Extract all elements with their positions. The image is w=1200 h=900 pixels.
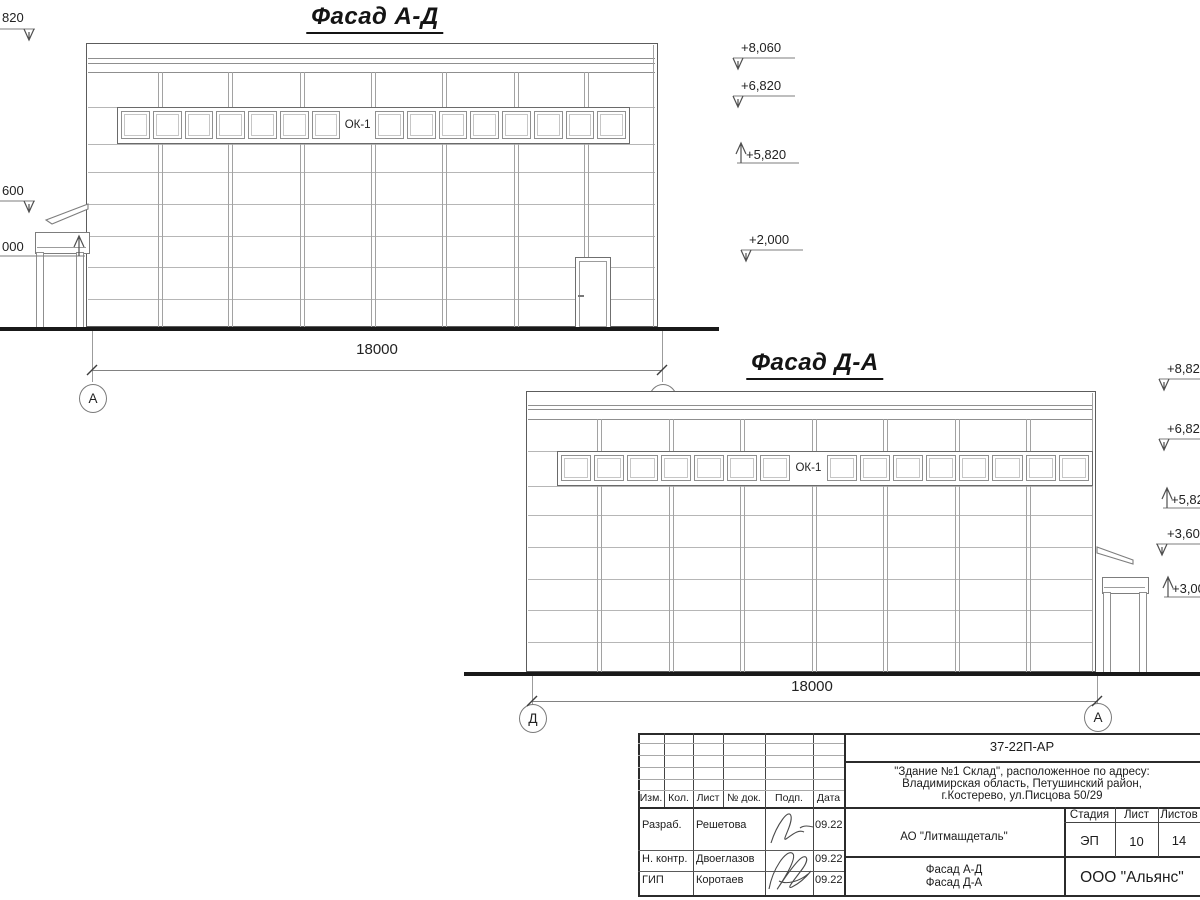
- window: [597, 111, 626, 139]
- window-inner-frame: [630, 458, 654, 478]
- sheet-title-line: Фасад А-Д: [844, 864, 1064, 876]
- panel-joint-line: [528, 642, 1093, 643]
- window-inner-frame: [830, 458, 854, 478]
- extension-line: [92, 331, 93, 382]
- panel-joint-line: [528, 579, 1093, 580]
- drawing-sheet: 37-22П-АР "Здание №1 Склад", расположенн…: [0, 0, 1200, 900]
- col-izm: Изм.: [638, 792, 664, 804]
- signature-row-line: [638, 871, 844, 872]
- revision-row-line: [638, 755, 844, 756]
- window-inner-frame: [188, 114, 211, 136]
- parapet-line: [528, 419, 1093, 420]
- window-inner-frame: [283, 114, 306, 136]
- window-inner-frame: [569, 114, 592, 136]
- window: [860, 455, 890, 481]
- title-block-border: [1064, 807, 1066, 897]
- door-leaf: [579, 261, 607, 327]
- window: [216, 111, 245, 139]
- project-address-line: г.Костерево, ул.Писцова 50/29: [844, 790, 1200, 802]
- window-inner-frame: [251, 114, 274, 136]
- window: [153, 111, 182, 139]
- title-block-divider: [664, 733, 665, 807]
- window: [760, 455, 790, 481]
- axis-bubble: А: [1084, 703, 1112, 732]
- elevation-value: +6,82: [1167, 421, 1200, 436]
- window-inner-frame: [995, 458, 1019, 478]
- sign-date: 09.22: [815, 853, 843, 865]
- window: [893, 455, 923, 481]
- elevation-arrow-down: [741, 250, 751, 261]
- ground-line: [0, 327, 719, 331]
- title-block-border: [638, 895, 1200, 897]
- project-address-line: "Здание №1 Склад", расположенное по адре…: [844, 766, 1200, 778]
- revision-row-line: [638, 743, 844, 744]
- title-block-border: [844, 733, 846, 897]
- window-inner-frame: [962, 458, 986, 478]
- elevation-arrow-down: [1159, 379, 1169, 390]
- revision-row-line: [638, 790, 844, 791]
- elevation-value: 600: [2, 183, 24, 198]
- portico-post: [36, 252, 44, 329]
- window: [594, 455, 624, 481]
- window: [661, 455, 691, 481]
- window: [280, 111, 309, 139]
- sheets-label: Листов: [1158, 809, 1200, 821]
- elevation-arrow-down: [1157, 544, 1167, 555]
- sign-date: 09.22: [815, 874, 843, 886]
- window-inner-frame: [156, 114, 179, 136]
- doc-code: 37-22П-АР: [844, 739, 1200, 754]
- window-inner-frame: [763, 458, 787, 478]
- canopy-roof: [46, 204, 88, 224]
- elevation-value: 820: [2, 10, 24, 25]
- window: [1026, 455, 1056, 481]
- window-inner-frame: [600, 114, 623, 136]
- title-block-divider: [1064, 822, 1200, 823]
- project-address-line: Владимирская область, Петушинский район,: [844, 778, 1200, 790]
- window: [502, 111, 531, 139]
- window-inner-frame: [1029, 458, 1053, 478]
- title-block-divider: [723, 733, 724, 807]
- elevation-arrow-down: [24, 201, 34, 212]
- dimension-line: [532, 701, 1097, 702]
- stage-label: Стадия: [1064, 809, 1115, 821]
- sign-name: Коротаев: [696, 874, 744, 886]
- window: [470, 111, 499, 139]
- window: [566, 111, 595, 139]
- window-inner-frame: [410, 114, 433, 136]
- customer-name: АО "Литмашдеталь": [844, 831, 1064, 843]
- portico-post: [1139, 592, 1147, 674]
- window-band-label: ОК-1: [793, 455, 823, 481]
- title-block-divider: [1158, 807, 1159, 857]
- elevation-value: +2,000: [749, 232, 789, 247]
- dimension-value: 18000: [791, 678, 833, 695]
- ground-line: [464, 672, 1200, 676]
- window-band-label: ОК-1: [343, 111, 372, 139]
- parapet-line: [88, 63, 655, 64]
- wall-edge-line: [653, 45, 654, 327]
- window: [561, 455, 591, 481]
- elevation-arrow-down: [733, 58, 743, 69]
- elevation-value: +8,060: [741, 40, 781, 55]
- canopy-roof: [1097, 547, 1133, 564]
- panel-joint-line: [528, 515, 1093, 516]
- title-block-border: [844, 761, 1200, 763]
- signature-scribble: [771, 814, 813, 843]
- dimension-value: 18000: [356, 341, 398, 358]
- panel-joint-line: [528, 486, 1093, 487]
- window: [727, 455, 757, 481]
- window-inner-frame: [505, 114, 528, 136]
- title-block-border: [844, 856, 1200, 858]
- extension-line: [662, 331, 663, 382]
- axis-bubble: А: [79, 384, 107, 413]
- axis-bubble: Д: [519, 704, 547, 733]
- window-inner-frame: [473, 114, 496, 136]
- window-inner-frame: [564, 458, 588, 478]
- facade-title: Фасад Д-А: [746, 349, 883, 380]
- elevation-value: +6,820: [741, 78, 781, 93]
- portico-post: [1103, 592, 1111, 674]
- panel-joint-line: [528, 610, 1093, 611]
- window: [627, 455, 657, 481]
- window-inner-frame: [863, 458, 887, 478]
- elevation-arrow-down: [24, 29, 34, 40]
- parapet-line: [528, 409, 1093, 410]
- window: [407, 111, 436, 139]
- window: [534, 111, 563, 139]
- window-inner-frame: [219, 114, 242, 136]
- window: [439, 111, 468, 139]
- dimension-line: [92, 370, 662, 371]
- parapet-line: [88, 58, 655, 59]
- window: [185, 111, 214, 139]
- portico-beam-line: [1104, 587, 1145, 588]
- wall-edge-line: [1092, 393, 1093, 672]
- title-block-border: [638, 733, 640, 897]
- window-inner-frame: [664, 458, 688, 478]
- elevation-value: +3,60: [1167, 526, 1200, 541]
- window-inner-frame: [442, 114, 465, 136]
- elevation-value: 000: [2, 239, 24, 254]
- sheet-label: Лист: [1115, 809, 1158, 821]
- col-podp: Подп.: [765, 792, 813, 804]
- col-ndoc: № док.: [723, 792, 765, 804]
- elevation-value: +8,82: [1167, 361, 1200, 376]
- window-inner-frame: [124, 114, 147, 136]
- sign-name: Двоеглазов: [696, 853, 754, 865]
- facade-title: Фасад А-Д: [306, 3, 443, 34]
- window: [959, 455, 989, 481]
- sheets-total: 14: [1158, 833, 1200, 848]
- window-inner-frame: [697, 458, 721, 478]
- parapet-line: [528, 405, 1093, 406]
- stage-value: ЭП: [1064, 833, 1115, 848]
- window: [992, 455, 1022, 481]
- design-firm-name: ООО "Альянс": [1064, 869, 1200, 887]
- window: [375, 111, 404, 139]
- sign-role: Разраб.: [642, 819, 682, 831]
- sign-name: Решетова: [696, 819, 746, 831]
- sheet-title-line: Фасад Д-А: [844, 877, 1064, 889]
- portico-post: [76, 252, 84, 329]
- window: [312, 111, 341, 139]
- window: [827, 455, 857, 481]
- portico-beam: [35, 232, 90, 254]
- window-inner-frame: [597, 458, 621, 478]
- sign-role: Н. контр.: [642, 853, 687, 865]
- elevation-value: +5,82: [1171, 492, 1200, 507]
- window-inner-frame: [378, 114, 401, 136]
- panel-joint-line: [528, 547, 1093, 548]
- elevation-value: +5,820: [746, 147, 786, 162]
- elevation-value: +3,00: [1172, 581, 1200, 596]
- title-block-divider: [1115, 807, 1116, 857]
- elevation-arrow-down: [733, 96, 743, 107]
- window-inner-frame: [315, 114, 338, 136]
- col-list: Лист: [693, 792, 723, 804]
- portico-beam-line: [37, 247, 86, 248]
- facade-building: [526, 391, 1096, 672]
- window-inner-frame: [896, 458, 920, 478]
- revision-row-line: [638, 767, 844, 768]
- window: [1059, 455, 1089, 481]
- sign-role: ГИП: [642, 874, 664, 886]
- sign-date: 09.22: [815, 819, 843, 831]
- window: [248, 111, 277, 139]
- door-handle: [578, 295, 584, 297]
- window-inner-frame: [929, 458, 953, 478]
- signature-row-line: [638, 850, 844, 851]
- window-inner-frame: [730, 458, 754, 478]
- col-data: Дата: [813, 792, 844, 804]
- elevation-arrow-up: [736, 143, 746, 163]
- elevation-arrow-down: [1159, 439, 1169, 450]
- window-inner-frame: [537, 114, 560, 136]
- window: [926, 455, 956, 481]
- window: [121, 111, 150, 139]
- revision-row-line: [638, 779, 844, 780]
- window: [694, 455, 724, 481]
- window-inner-frame: [1062, 458, 1086, 478]
- col-kol: Кол.: [664, 792, 693, 804]
- sheet-number: 10: [1115, 834, 1158, 849]
